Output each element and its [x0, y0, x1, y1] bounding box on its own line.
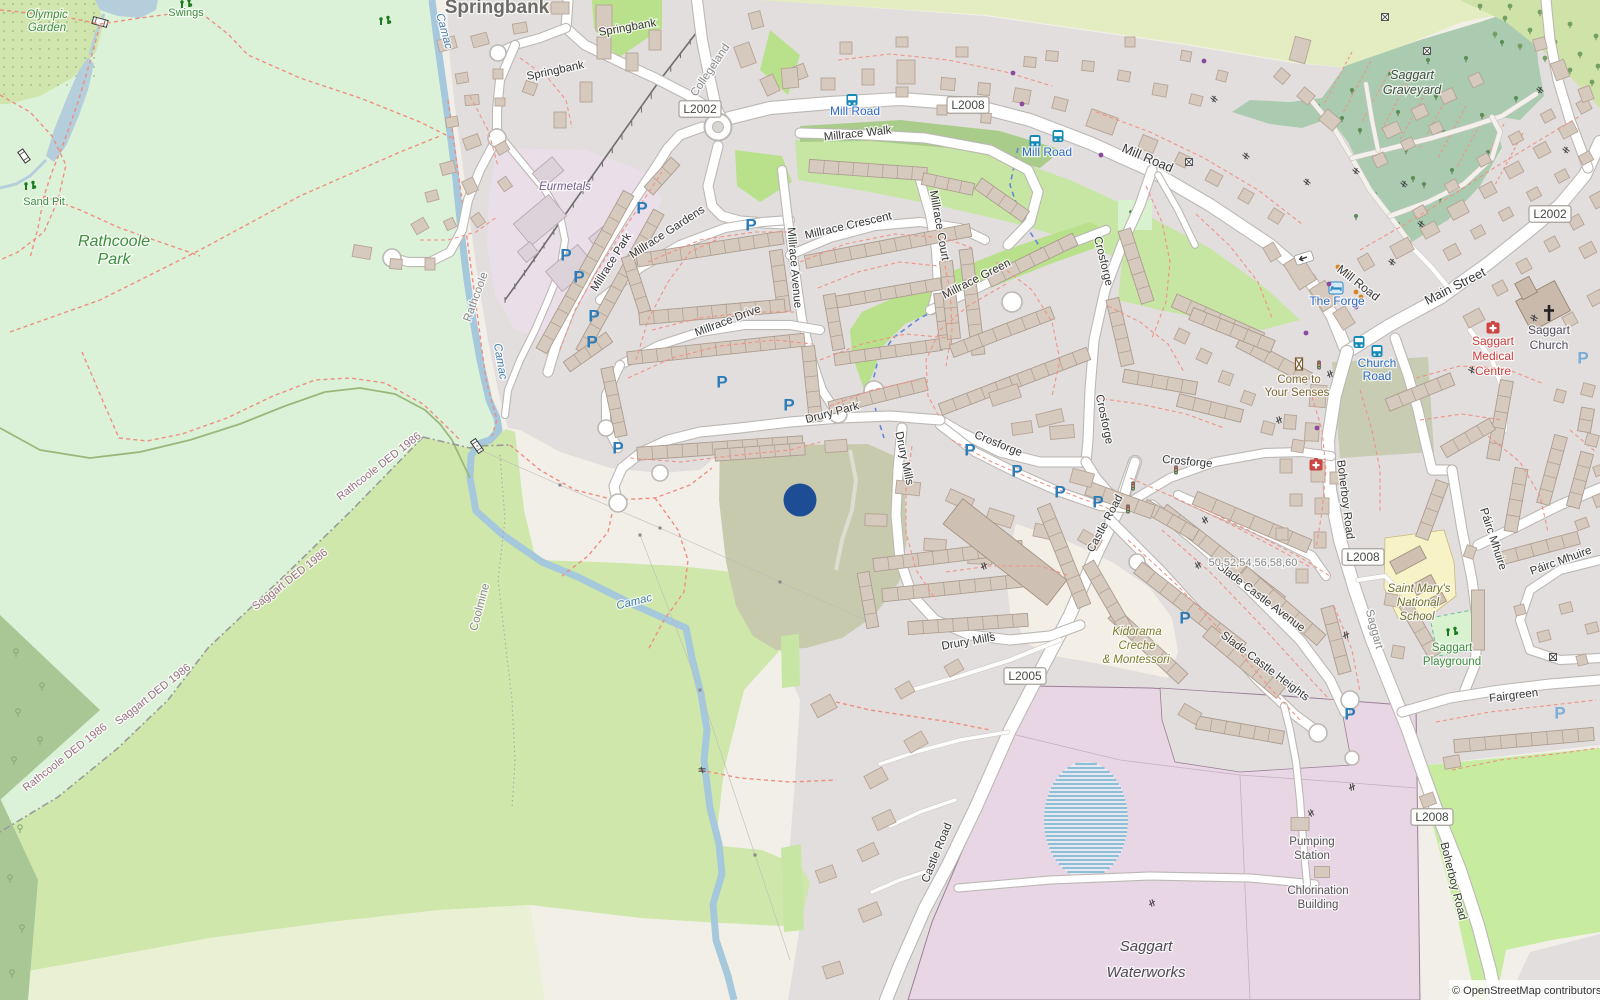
svg-text:Church: Church: [1530, 338, 1569, 352]
svg-text:Saggart: Saggart: [1432, 642, 1473, 654]
svg-text:Park: Park: [98, 251, 132, 268]
svg-text:P: P: [636, 199, 647, 218]
svg-text:Road: Road: [1363, 369, 1392, 383]
svg-text:& Montessori: & Montessori: [1102, 654, 1170, 666]
svg-text:P: P: [612, 439, 623, 458]
svg-text:© OpenStreetMap contributors: © OpenStreetMap contributors: [1452, 985, 1600, 997]
svg-text:Centre: Centre: [1475, 364, 1511, 378]
svg-text:Olympic: Olympic: [26, 9, 68, 21]
svg-text:Pumping: Pumping: [1289, 836, 1334, 848]
svg-text:P: P: [560, 246, 571, 265]
svg-text:School: School: [1399, 611, 1435, 623]
svg-text:Saint Mary's: Saint Mary's: [1388, 583, 1451, 595]
svg-text:P: P: [1554, 704, 1565, 723]
svg-text:Church: Church: [1358, 356, 1397, 370]
svg-text:Saggart: Saggart: [1390, 68, 1434, 82]
svg-text:Springbank: Springbank: [445, 0, 550, 18]
svg-text:Mill Road: Mill Road: [1022, 145, 1072, 159]
svg-text:P: P: [588, 307, 599, 326]
svg-text:National: National: [1397, 597, 1440, 609]
svg-text:Building: Building: [1298, 899, 1339, 911]
svg-text:Waterworks: Waterworks: [1107, 964, 1186, 981]
svg-text:L2008: L2008: [951, 98, 985, 112]
svg-text:P: P: [1577, 349, 1588, 368]
svg-text:50,52,54,56,58,60: 50,52,54,56,58,60: [1209, 557, 1298, 569]
svg-text:Chlorination: Chlorination: [1287, 885, 1348, 897]
svg-text:Sand Pit: Sand Pit: [23, 196, 65, 208]
svg-text:P: P: [1344, 705, 1355, 724]
svg-text:L2008: L2008: [1415, 810, 1449, 824]
svg-text:Mill Road: Mill Road: [830, 104, 880, 118]
svg-text:Kidorama: Kidorama: [1112, 626, 1161, 638]
svg-text:L2002: L2002: [683, 102, 717, 116]
svg-text:Creche: Creche: [1118, 640, 1155, 652]
svg-text:The Forge: The Forge: [1309, 294, 1365, 308]
svg-text:Garden: Garden: [28, 22, 66, 34]
svg-text:L2008: L2008: [1346, 550, 1380, 564]
svg-text:Your Senses: Your Senses: [1265, 387, 1330, 399]
svg-text:Graveyard: Graveyard: [1383, 83, 1442, 97]
svg-text:P: P: [586, 333, 597, 352]
svg-text:L2002: L2002: [1533, 207, 1567, 221]
svg-text:Saggart: Saggart: [1120, 938, 1173, 955]
svg-text:P: P: [745, 216, 756, 235]
svg-text:Come to: Come to: [1277, 374, 1320, 386]
svg-text:P: P: [573, 268, 584, 287]
svg-text:Playground: Playground: [1423, 656, 1481, 668]
svg-text:Station: Station: [1294, 850, 1330, 862]
svg-text:Swings: Swings: [168, 7, 204, 19]
svg-text:Medical: Medical: [1472, 349, 1513, 363]
svg-text:P: P: [1179, 609, 1190, 628]
svg-text:P: P: [1092, 493, 1103, 512]
svg-text:P: P: [716, 373, 727, 392]
svg-text:Saggart: Saggart: [1528, 323, 1571, 337]
svg-text:Saggart: Saggart: [1472, 334, 1515, 348]
svg-text:Rathcoole: Rathcoole: [78, 233, 150, 250]
svg-text:P: P: [964, 441, 975, 460]
svg-text:Eurmetals: Eurmetals: [539, 181, 591, 193]
svg-text:L2005: L2005: [1008, 669, 1042, 683]
svg-text:P: P: [1011, 462, 1022, 481]
svg-text:P: P: [1054, 483, 1065, 502]
svg-text:P: P: [783, 396, 794, 415]
